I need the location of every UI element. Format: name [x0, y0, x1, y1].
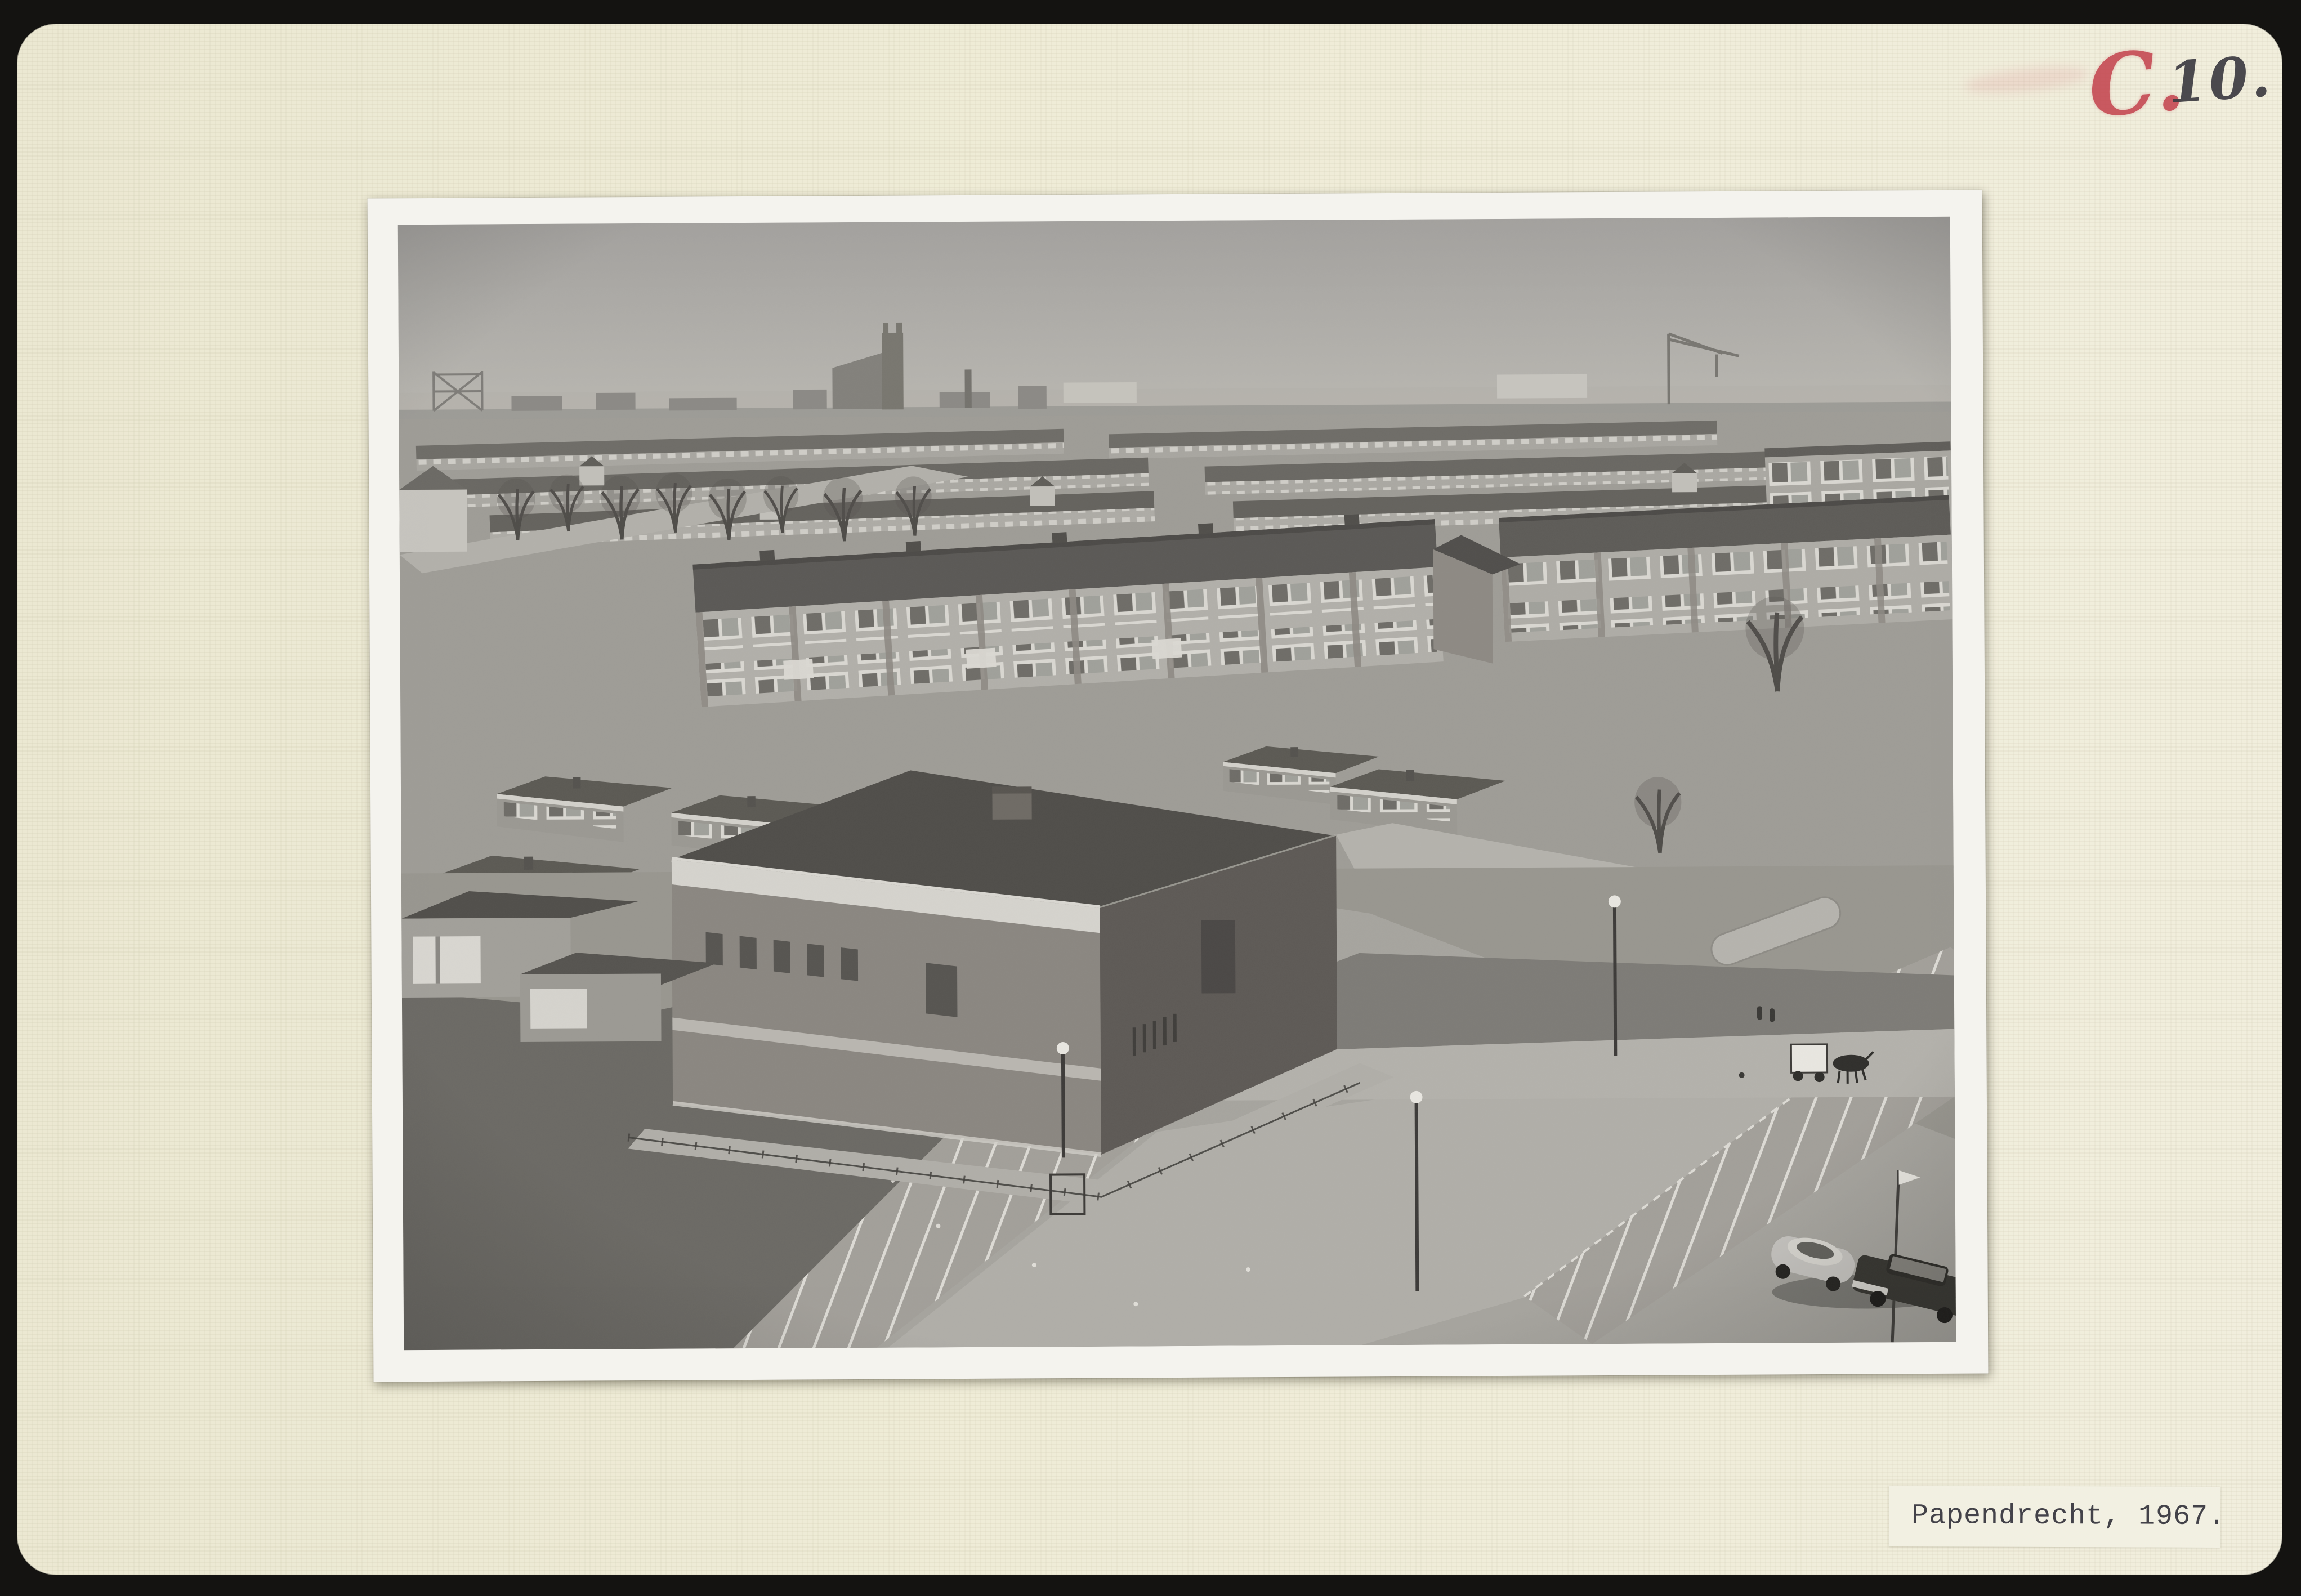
aerial-photograph: [398, 217, 1956, 1350]
photo-print: [368, 190, 1989, 1382]
photo-scene: [398, 217, 1956, 1350]
vignette: [398, 217, 1956, 1350]
archive-card: C. 10.: [17, 24, 2282, 1575]
handwritten-code: C. 10.: [1920, 24, 2291, 147]
caption-text: Papendrecht, 1967.: [1911, 1486, 2226, 1548]
code-red-letter: C.: [2085, 30, 2188, 137]
scanned-archive-card: C. 10.: [0, 0, 2301, 1596]
caption-tape: Papendrecht, 1967.: [1889, 1486, 2220, 1548]
code-number: 10.: [2165, 43, 2275, 117]
red-ink-smudge: [1964, 62, 2090, 98]
